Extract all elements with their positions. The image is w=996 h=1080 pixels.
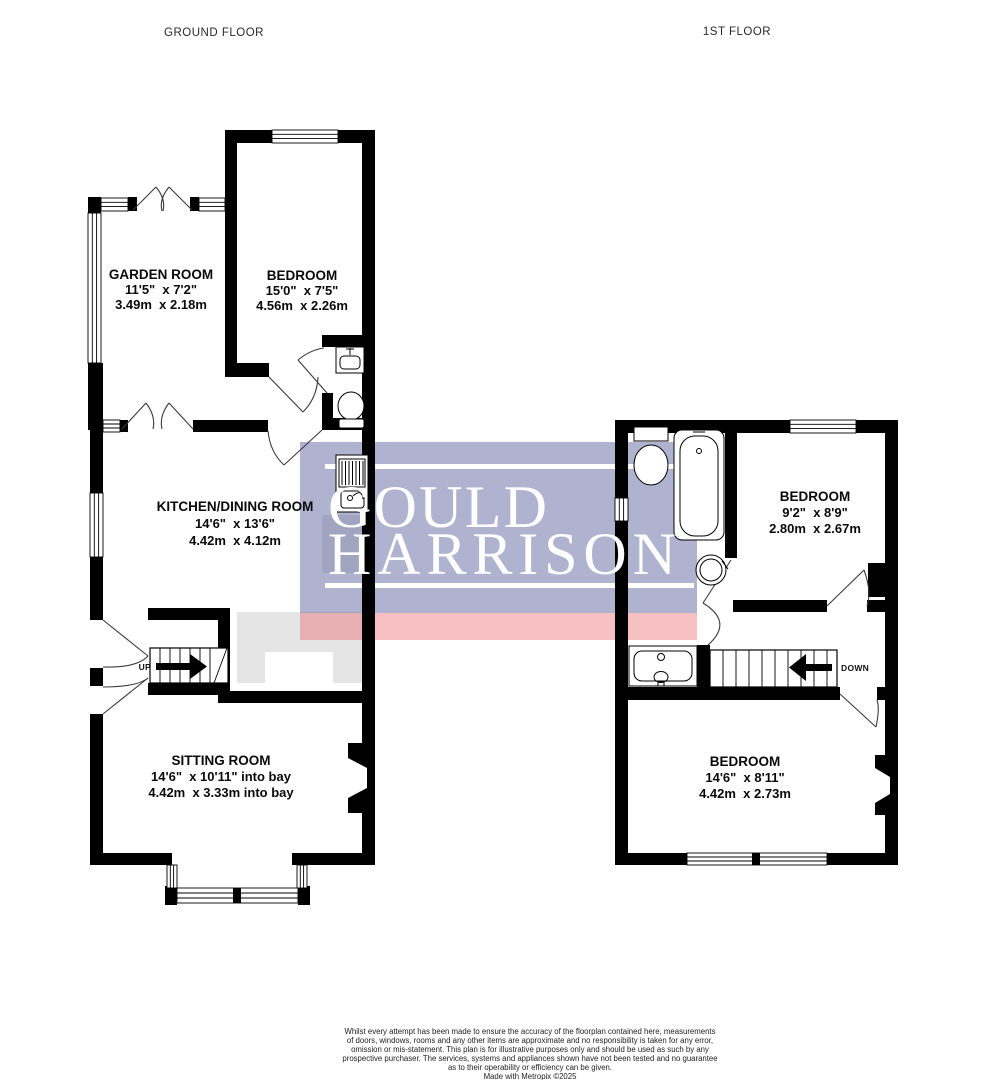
room-label-bedroom-first-small: BEDROOM 9'2" x 8'9" 2.80m x 2.67m [769, 489, 861, 536]
toilet-icon [634, 427, 668, 485]
first-floor-doors [703, 560, 878, 727]
room-name: BEDROOM [780, 489, 851, 504]
stairs-up-label: UP [139, 662, 151, 672]
door [298, 348, 327, 393]
room-metric: 4.42m x 4.12m [189, 533, 281, 548]
window [790, 420, 856, 433]
room-imperial: 11'5" x 7'2" [125, 282, 197, 297]
room-name: KITCHEN/DINING ROOM [157, 499, 314, 514]
stairs-up: UP [139, 648, 228, 683]
disclaimer-line: as to their operability or efficiency ca… [448, 1063, 612, 1072]
window [90, 493, 103, 557]
room-label-bedroom-ground: BEDROOM 15'0" x 7'5" 4.56m x 2.26m [256, 268, 348, 313]
room-label-garden-room: GARDEN ROOM 11'5" x 7'2" 3.49m x 2.18m [109, 267, 213, 312]
chimney-breast-bedroom [875, 755, 898, 815]
room-metric: 3.49m x 2.18m [115, 297, 207, 312]
ground-floor-title: GROUND FLOOR [164, 27, 264, 39]
disclaimer-line: omission or mis-statement. This plan is … [351, 1045, 709, 1054]
room-name: BEDROOM [267, 268, 338, 283]
front-door [103, 620, 148, 667]
door [827, 570, 869, 606]
window [272, 130, 338, 143]
logo-pink-band [300, 613, 697, 640]
logo-word-harrison: HARRISON [328, 521, 676, 587]
room-name: SITTING ROOM [172, 753, 271, 768]
room-metric: 2.80m x 2.67m [769, 521, 861, 536]
window [199, 198, 225, 211]
stairs-down: DOWN [710, 650, 869, 687]
room-imperial: 14'6" x 13'6" [195, 516, 275, 531]
room-metric: 4.42m x 3.33m into bay [148, 785, 294, 800]
first-floor-title: 1ST FLOOR [703, 26, 771, 38]
french-door [122, 403, 193, 429]
room-label-bedroom-first-large: BEDROOM 14'6" x 8'11" 4.42m x 2.73m [699, 754, 791, 801]
room-metric: 4.56m x 2.26m [256, 298, 348, 313]
stairs-down-label: DOWN [841, 663, 869, 673]
chimney-breast-sitting-room [348, 743, 375, 813]
logo-shadow-block [237, 612, 265, 683]
room-imperial: 14'6" x 8'11" [705, 770, 784, 785]
room-name: GARDEN ROOM [109, 267, 213, 282]
room-imperial: 15'0" x 7'5" [266, 283, 339, 298]
window [103, 420, 120, 432]
door [103, 678, 148, 714]
disclaimer: Whilst every attempt has been made to en… [342, 1027, 717, 1080]
door [269, 377, 318, 412]
disclaimer-line: prospective purchaser. The services, sys… [342, 1054, 717, 1063]
window [88, 213, 101, 363]
door [840, 694, 878, 727]
room-metric: 4.42m x 2.73m [699, 786, 791, 801]
room-imperial: 14'6" x 10'11" into bay [151, 769, 292, 784]
disclaimer-line: of doors, windows, rooms and any other i… [347, 1036, 713, 1045]
room-label-kitchen-dining: KITCHEN/DINING ROOM 14'6" x 13'6" 4.42m … [157, 499, 314, 548]
disclaimer-line: Whilst every attempt has been made to en… [345, 1027, 716, 1036]
window [687, 853, 827, 865]
room-name: BEDROOM [710, 754, 781, 769]
wc-toilet-icon [338, 392, 364, 428]
room-label-sitting-room: SITTING ROOM 14'6" x 10'11" into bay 4.4… [148, 753, 294, 800]
window [615, 498, 628, 521]
room-imperial: 9'2" x 8'9" [782, 505, 848, 520]
basin-icon [696, 555, 728, 585]
wc-sink-icon [336, 347, 364, 373]
bathroom-sink-icon [629, 646, 697, 686]
window [101, 198, 128, 211]
french-door [133, 187, 192, 211]
floorplan-canvas: UP GARDEN ROOM 11'5" x 7'2" 3.49m x 2.18 [0, 0, 996, 1080]
disclaimer-credit: Made with Metropix ©2025 [484, 1072, 578, 1080]
bay-window [167, 865, 307, 903]
bathtub-icon [674, 430, 724, 540]
